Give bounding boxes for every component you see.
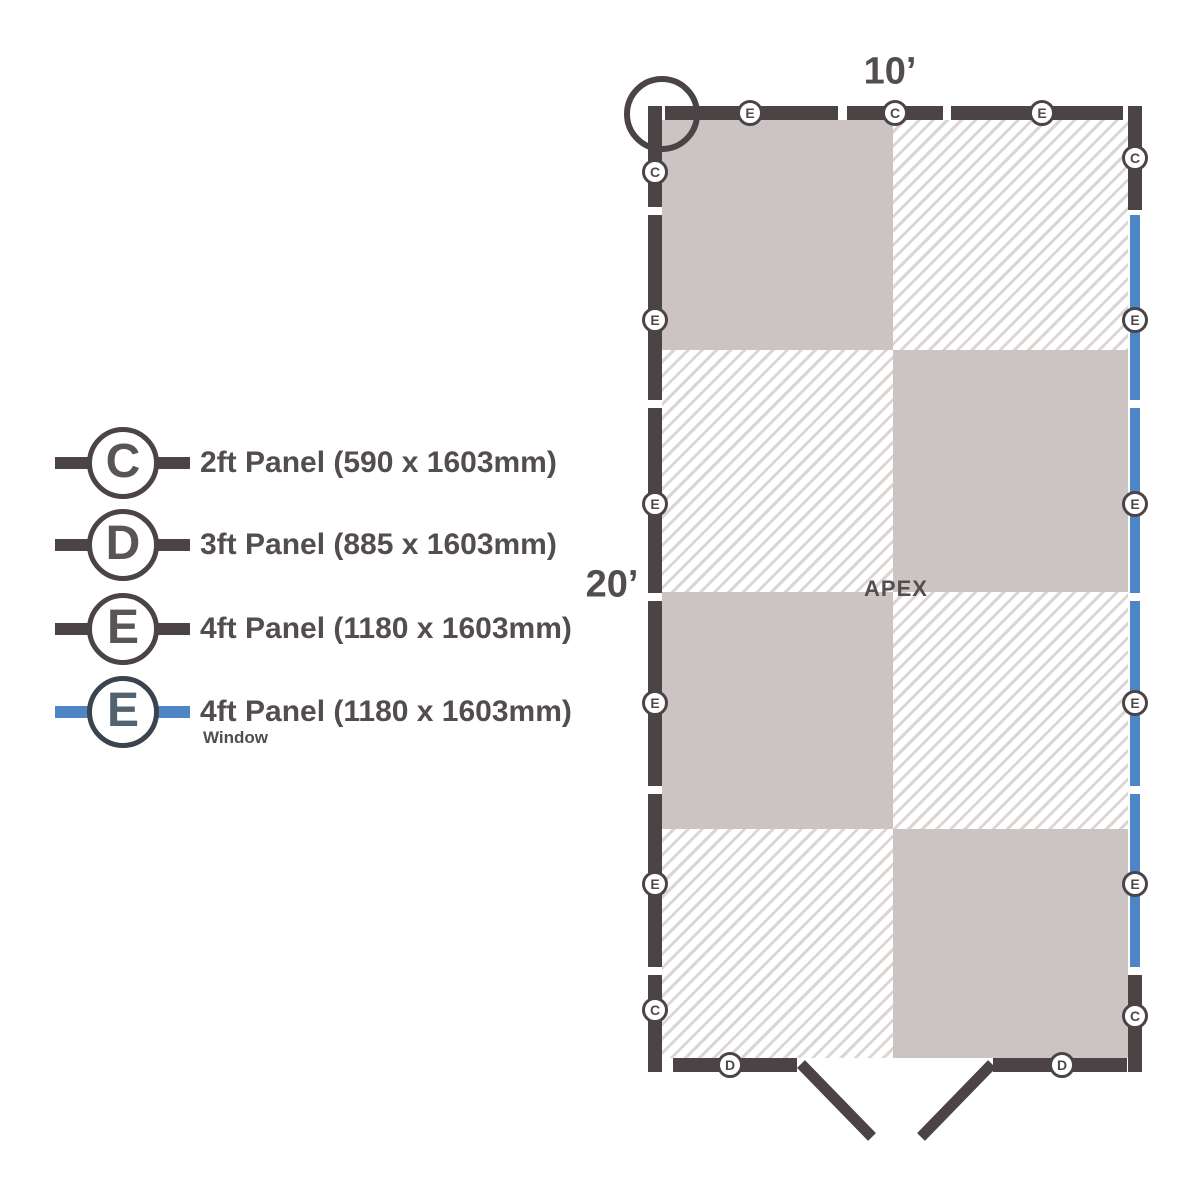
panel-marker-c: C	[642, 159, 668, 185]
panel-marker-e: E	[1029, 100, 1055, 126]
panel-marker-e: E	[1122, 871, 1148, 897]
apex-label: APEX	[864, 576, 928, 602]
panel-marker-e: E	[642, 491, 668, 517]
panel-marker-e: E	[1122, 491, 1148, 517]
panel-marker-c: C	[642, 997, 668, 1023]
panel-marker-e: E	[1122, 307, 1148, 333]
corner-detail-circle-icon	[624, 76, 700, 152]
panel-marker-e: E	[737, 100, 763, 126]
door-leaf-left-icon	[801, 1064, 872, 1137]
panel-marker-c: C	[1122, 1003, 1148, 1029]
panel-marker-e: E	[1122, 690, 1148, 716]
panel-marker-c: C	[1122, 145, 1148, 171]
panel-marker-e: E	[642, 690, 668, 716]
panel-marker-d: D	[1049, 1052, 1075, 1078]
panel-marker-d: D	[717, 1052, 743, 1078]
panel-marker-c: C	[882, 100, 908, 126]
panel-marker-e: E	[642, 871, 668, 897]
shed-panel-diagram: C 2ft Panel (590 x 1603mm) D 3ft Panel (…	[0, 0, 1200, 1200]
door-leaf-right-icon	[921, 1064, 992, 1137]
height-dimension-label: 20’	[586, 564, 639, 607]
width-dimension-label: 10’	[864, 51, 917, 94]
panel-marker-e: E	[642, 307, 668, 333]
